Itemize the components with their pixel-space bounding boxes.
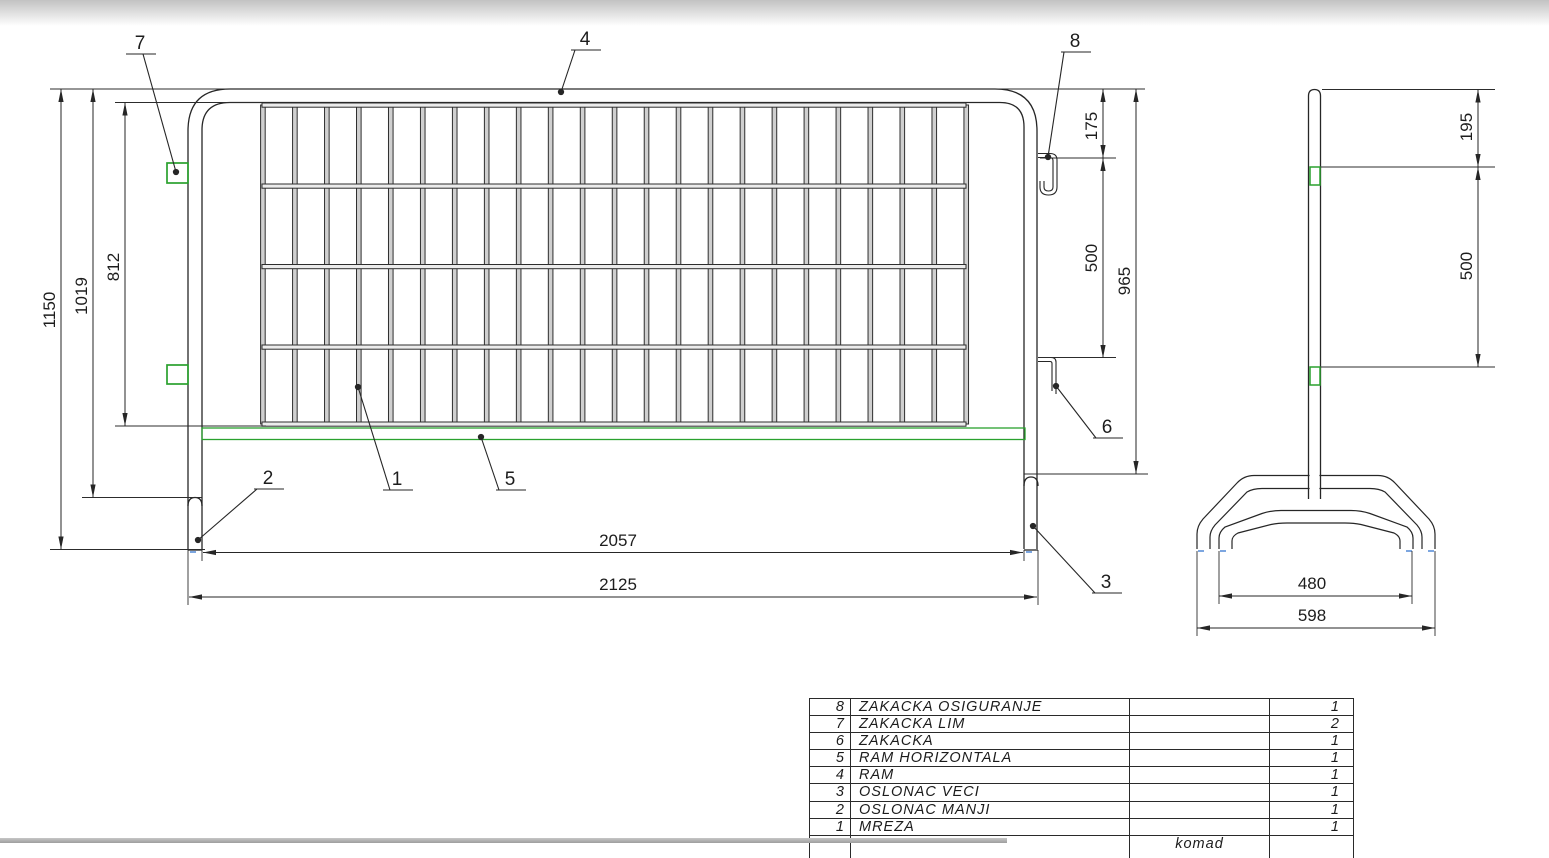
part-name: OSLONAC VECI [851, 784, 1130, 800]
callout-8-safety-hook: 8 [1070, 31, 1081, 52]
callout-3-large-support: 3 [1101, 572, 1112, 593]
part-spec [1130, 733, 1270, 749]
dim-hook-top-offset: 175 [1082, 112, 1101, 140]
callout-4-frame: 4 [580, 29, 591, 50]
callout-6-hook: 6 [1102, 417, 1113, 438]
dim-mesh-height: 812 [104, 253, 123, 281]
part-spec [1130, 802, 1270, 818]
mesh-grid [261, 103, 969, 426]
part-number: 3 [810, 784, 851, 800]
hook-bottom [1038, 358, 1056, 395]
part-name: MREZA [851, 819, 1130, 835]
part-qty: 1 [1270, 802, 1350, 818]
part-name: ZAKACKA [851, 733, 1130, 749]
dimension-lines-side [1197, 90, 1478, 629]
callout-1-mesh: 1 [392, 469, 403, 490]
dim-base-inner: 480 [1298, 574, 1326, 593]
cad-drawing-page: { "front_view": { "dim_total_height": "1… [0, 0, 1549, 843]
callout-5-horizontal-rail: 5 [505, 469, 516, 490]
part-name: RAM HORIZONTALA [851, 750, 1130, 766]
horizontal-rail [202, 428, 1025, 440]
qty-header-label: komad [1130, 836, 1270, 858]
part-number: 4 [810, 767, 851, 783]
part-name: RAM [851, 767, 1130, 783]
dim-hook-spacing-side: 500 [1457, 252, 1476, 280]
table-row: 1 MREZA 1 [810, 819, 1353, 836]
part-spec [1130, 750, 1270, 766]
sheet-hooks-left [167, 163, 188, 384]
page-bottom-edge [0, 838, 1007, 843]
part-spec [1130, 716, 1270, 732]
part-number: 5 [810, 750, 851, 766]
part-spec [1130, 699, 1270, 715]
callout-2-small-support: 2 [263, 468, 274, 489]
part-spec [1130, 767, 1270, 783]
dim-base-outer: 598 [1298, 606, 1326, 625]
dim-inner-width: 2057 [599, 531, 637, 550]
table-row: 2 OSLONAC MANJI 1 [810, 802, 1353, 819]
part-qty: 1 [1270, 767, 1350, 783]
part-qty: 2 [1270, 716, 1350, 732]
dim-frame-height: 965 [1115, 267, 1134, 295]
dimension-lines-front [61, 89, 1136, 597]
table-row: 6 ZAKACKA 1 [810, 733, 1353, 750]
part-qty: 1 [1270, 750, 1350, 766]
parts-table: 8 ZAKACKA OSIGURANJE 1 7 ZAKACKA LIM 2 6… [809, 698, 1354, 858]
part-qty: 1 [1270, 733, 1350, 749]
part-number: 7 [810, 716, 851, 732]
post-foot-mask [1310, 470, 1320, 499]
part-name: ZAKACKA OSIGURANJE [851, 699, 1130, 715]
part-number: 2 [810, 802, 851, 818]
dim-outer-width: 2125 [599, 575, 637, 594]
dim-hook-spacing-front: 500 [1082, 244, 1101, 272]
part-qty: 1 [1270, 699, 1350, 715]
part-qty: 1 [1270, 784, 1350, 800]
side-view-post [1309, 90, 1321, 500]
dim-height-to-foot: 1019 [72, 277, 91, 315]
part-number: 6 [810, 733, 851, 749]
part-spec [1130, 819, 1270, 835]
table-row: 8 ZAKACKA OSIGURANJE 1 [810, 699, 1353, 716]
callout-7-sheet-hook: 7 [135, 33, 146, 54]
callout-leaders [126, 50, 1123, 593]
part-spec [1130, 784, 1270, 800]
table-row: 4 RAM 1 [810, 767, 1353, 784]
dim-top-to-hook: 195 [1457, 113, 1476, 141]
table-row: 3 OSLONAC VECI 1 [810, 784, 1353, 801]
extension-lines-side [1197, 90, 1495, 637]
part-number: 8 [810, 699, 851, 715]
dim-total-height: 1150 [40, 292, 59, 329]
part-number: 1 [810, 819, 851, 835]
part-name: OSLONAC MANJI [851, 802, 1130, 818]
part-qty: 1 [1270, 819, 1350, 835]
table-row: 5 RAM HORIZONTALA 1 [810, 750, 1353, 767]
part-name: ZAKACKA LIM [851, 716, 1130, 732]
table-row: 7 ZAKACKA LIM 2 [810, 716, 1353, 733]
sheet-hooks-side [1310, 167, 1320, 385]
